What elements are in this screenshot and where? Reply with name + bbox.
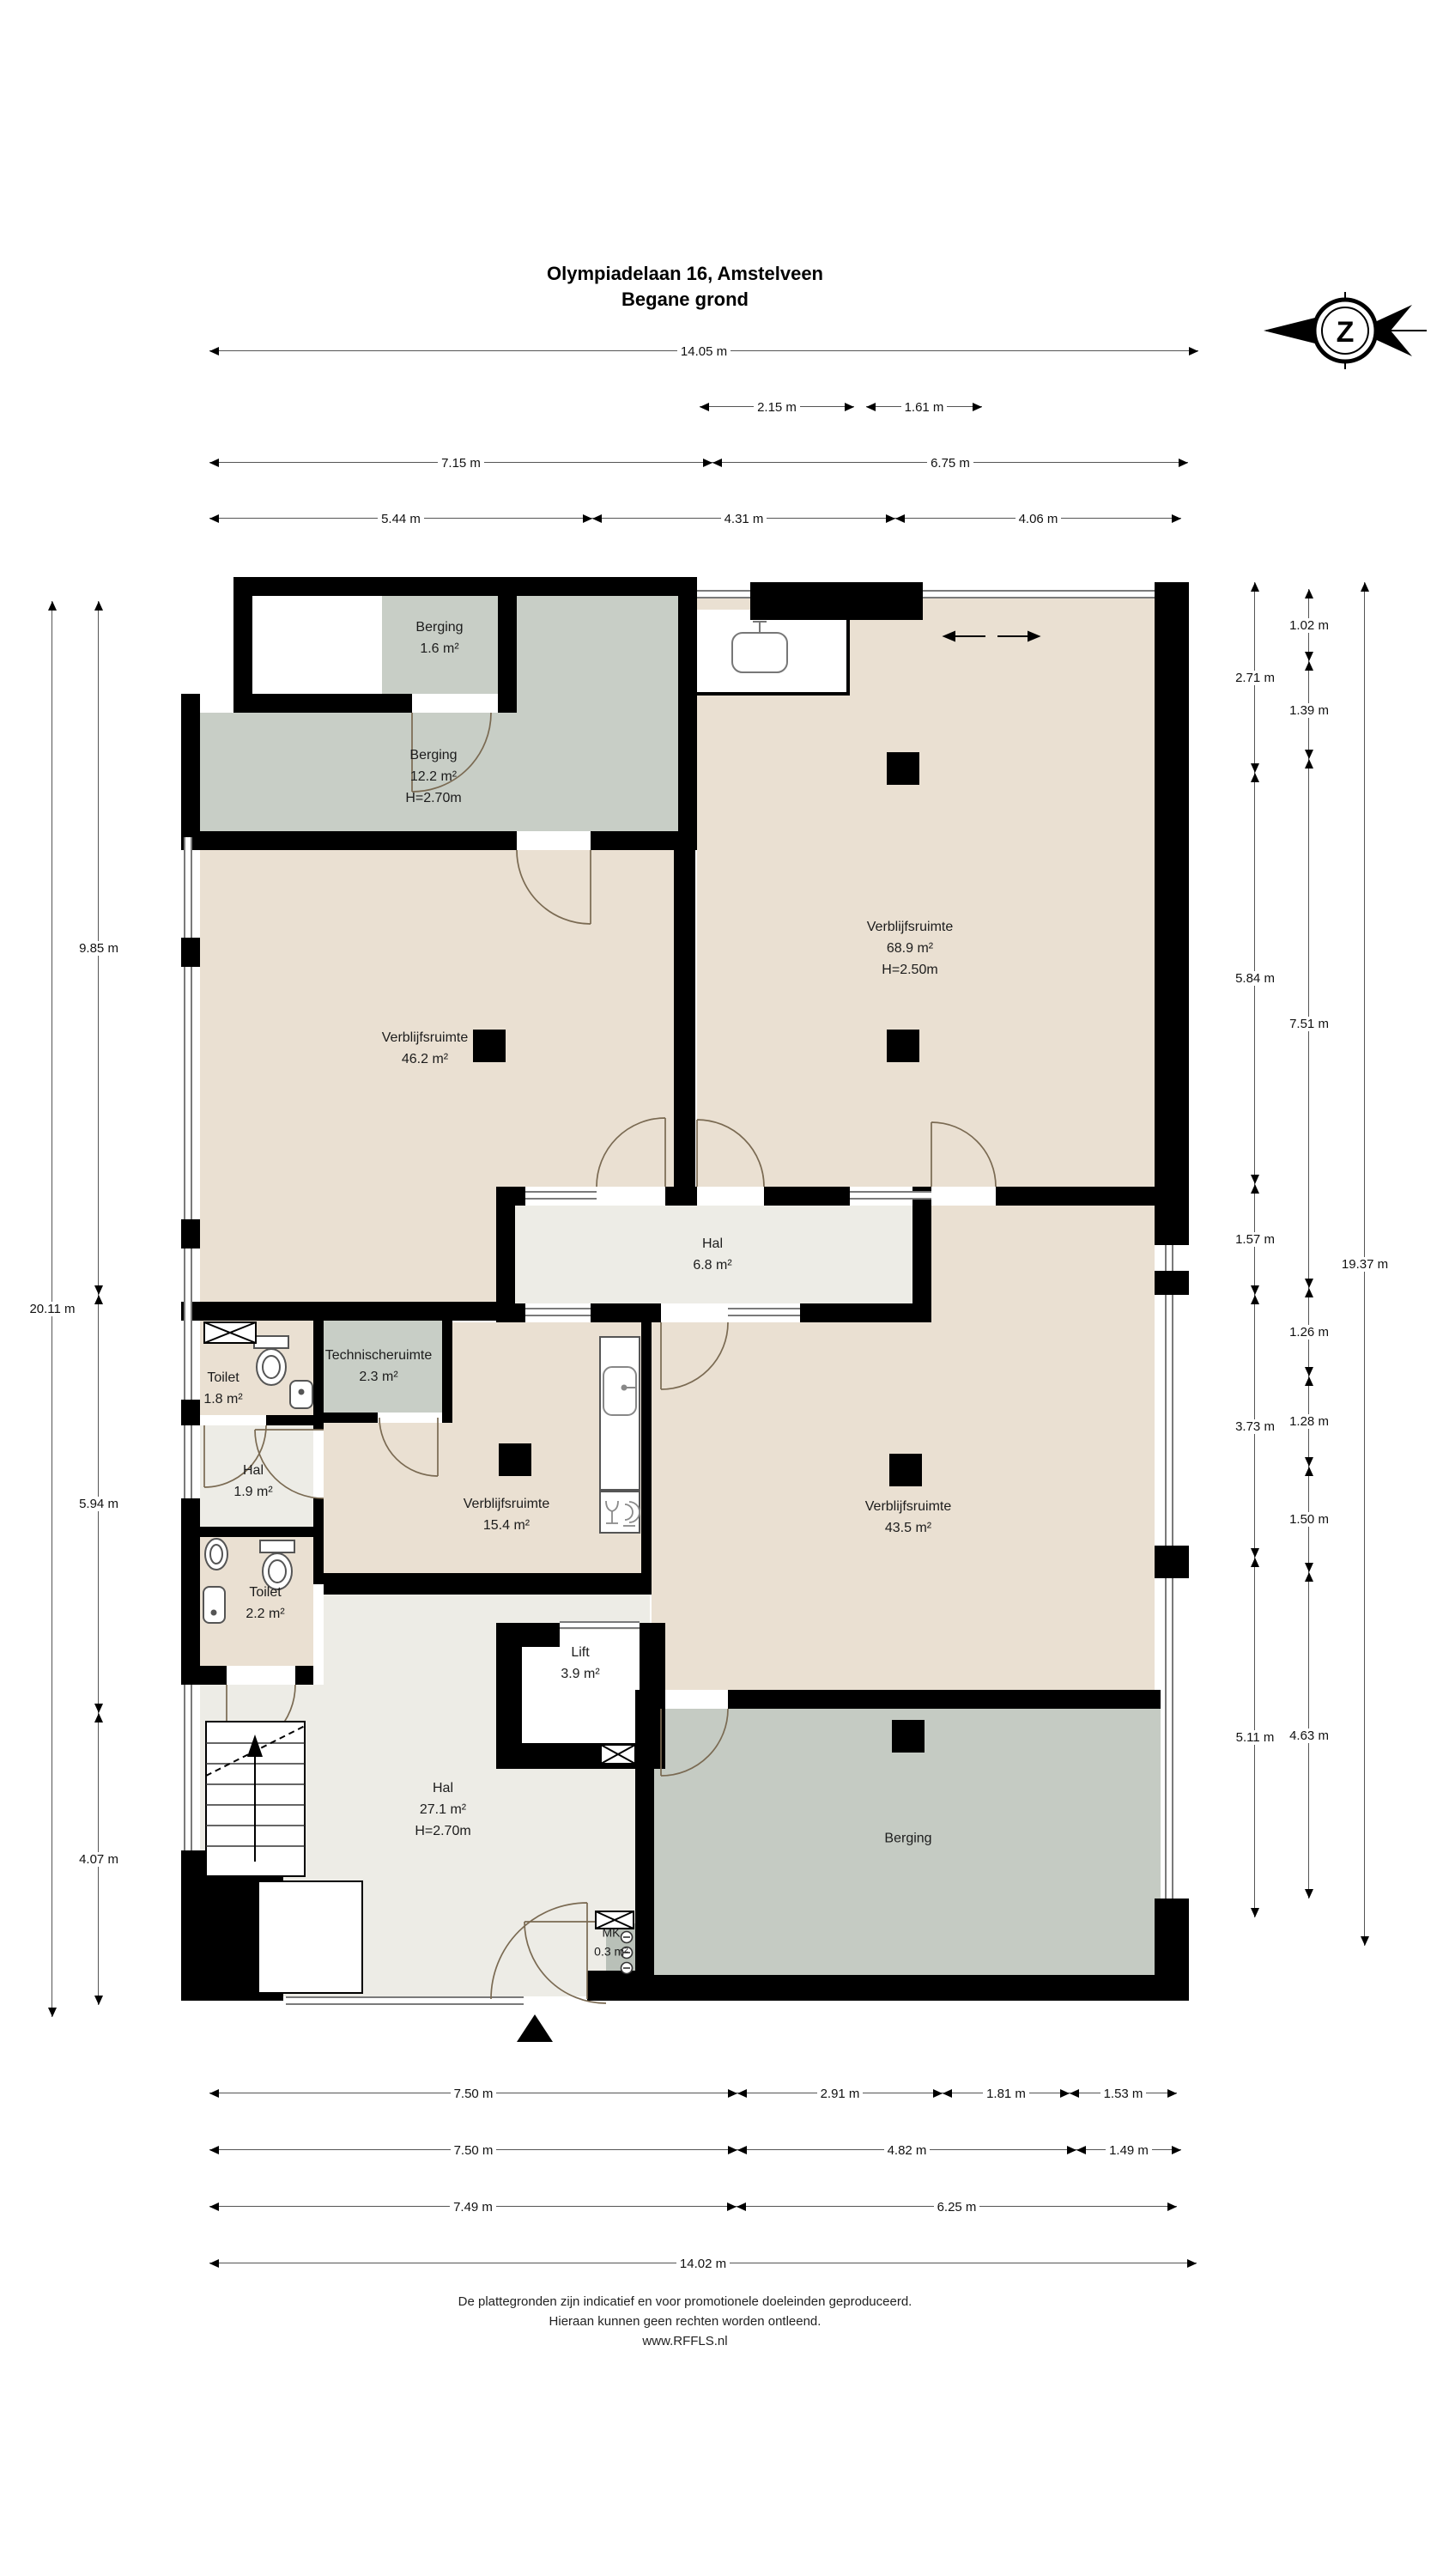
wall: [181, 1498, 200, 1685]
window: [184, 1685, 192, 1850]
wall-corner: [1155, 1899, 1189, 2001]
window: [184, 1425, 192, 1498]
disclaimer-line2: Hieraan kunnen geen rechten worden ontle…: [0, 2314, 1370, 2329]
dim-right: 1.02 m: [1301, 589, 1317, 661]
dim-right: 5.84 m: [1247, 773, 1263, 1184]
wall: [764, 1187, 850, 1206]
disclaimer-line1: De plattegronden zijn indicatief en voor…: [0, 2294, 1370, 2309]
room-area: 1.9 m²: [233, 1482, 272, 1504]
room-area: 46.2 m²: [382, 1049, 468, 1071]
room-label-berging-12-2: Berging 12.2 m² H=2.70m: [405, 745, 461, 809]
wall-top-bar: [750, 582, 923, 620]
title-floor: Begane grond: [0, 287, 1370, 313]
wall-divider-15-43: [641, 1322, 652, 1595]
pillar: [473, 1030, 506, 1062]
wall-pillar: [181, 938, 200, 967]
dim-top-total: 14.05 m: [209, 343, 1198, 359]
dim-bottom: 1.49 m: [1076, 2142, 1181, 2158]
kitchen-counter: [599, 1336, 640, 1491]
wall: [233, 577, 252, 713]
room-name: Hal: [693, 1234, 731, 1255]
dim-top: 4.06 m: [895, 511, 1181, 526]
wall-left-main: [181, 694, 200, 837]
room-area: 0.3 m²: [594, 1942, 628, 1961]
wall-lift: [496, 1623, 560, 1647]
dim-top: 5.44 m: [209, 511, 592, 526]
room-area: 2.2 m²: [246, 1604, 284, 1625]
room-label-berging-groot: Berging: [884, 1829, 931, 1850]
room-area: 6.8 m²: [693, 1255, 731, 1277]
room-height: H=2.70m: [415, 1820, 470, 1842]
dim-top: 2.15 m: [700, 399, 854, 415]
wall: [800, 1303, 931, 1322]
room-label-toilet-2-2: Toilet 2.2 m²: [246, 1583, 284, 1625]
wall: [498, 577, 517, 713]
page-title: Olympiadelaan 16, Amstelveen Begane gron…: [0, 261, 1370, 312]
room-area: 3.9 m²: [561, 1664, 599, 1686]
wall: [728, 1690, 1161, 1709]
window: [850, 1191, 931, 1200]
room-berging-1-6-niche: [252, 596, 382, 694]
room-name: Lift: [561, 1643, 599, 1664]
pillar: [892, 1720, 925, 1753]
dim-bottom: 6.25 m: [737, 2199, 1177, 2215]
room-label-hal-1-9: Hal 1.9 m²: [233, 1461, 272, 1504]
dishwasher-box: [599, 1491, 640, 1534]
window-front: [286, 1996, 524, 2005]
wall: [313, 1498, 324, 1584]
room-label-hal-6-8: Hal 6.8 m²: [693, 1234, 731, 1277]
room-area: 1.6 m²: [415, 639, 463, 660]
room-name: MK: [594, 1923, 628, 1942]
dim-bottom: 1.81 m: [943, 2086, 1070, 2101]
room-label-technische-ruimte: Technischeruimte 2.3 m²: [325, 1346, 433, 1388]
room-area: 27.1 m²: [415, 1800, 470, 1821]
compass-letter: Z: [1337, 316, 1355, 349]
wall: [912, 1187, 931, 1322]
room-verblijfsruimte-43-5-upper: [931, 1187, 1155, 1322]
pillar: [887, 1030, 919, 1062]
dim-right: 5.11 m: [1247, 1558, 1263, 1917]
floorplan-page: Olympiadelaan 16, Amstelveen Begane gron…: [0, 0, 1449, 2576]
window: [697, 590, 750, 598]
window: [184, 967, 192, 1219]
dim-left: 9.85 m: [91, 601, 106, 1295]
room-area: 2.3 m²: [325, 1367, 433, 1388]
room-name: Verblijfsruimte: [464, 1494, 549, 1516]
wall-pillar: [181, 1219, 200, 1249]
window: [525, 1191, 597, 1200]
door-opening: [597, 1187, 665, 1206]
pillar: [887, 752, 919, 785]
room-label-verblijfsruimte-68-9: Verblijfsruimte 68.9 m² H=2.50m: [867, 917, 953, 981]
door-opening: [661, 1690, 728, 1709]
window: [525, 1308, 591, 1316]
wall: [181, 831, 517, 850]
door-opening: [517, 831, 591, 850]
door-opening: [412, 694, 491, 713]
room-name: Verblijfsruimte: [867, 917, 953, 939]
entrance-arrow-icon: [517, 2014, 553, 2042]
wall: [200, 1527, 313, 1537]
dim-right: 3.73 m: [1247, 1295, 1263, 1558]
dim-bottom: 7.50 m: [209, 2142, 737, 2158]
pillar: [499, 1443, 531, 1476]
room-height: H=2.70m: [405, 787, 461, 809]
room-area: 1.8 m²: [203, 1389, 242, 1411]
wall: [181, 1302, 496, 1321]
door-opening: [697, 1187, 764, 1206]
room-area: 43.5 m²: [865, 1518, 951, 1540]
dim-left-total: 20.11 m: [45, 601, 60, 2017]
room-area: 68.9 m²: [867, 939, 953, 960]
dim-top: 7.15 m: [209, 455, 712, 471]
room-name: Verblijfsruimte: [865, 1497, 951, 1518]
dim-bottom: 4.82 m: [737, 2142, 1076, 2158]
dim-top: 1.61 m: [866, 399, 982, 415]
room-label-verblijfsruimte-15-4: Verblijfsruimte 15.4 m²: [464, 1494, 549, 1537]
wall: [233, 577, 697, 596]
stair-void: [258, 1880, 363, 1994]
room-name: Toilet: [203, 1368, 242, 1389]
dim-bottom: 7.49 m: [209, 2199, 737, 2215]
window: [184, 1249, 192, 1400]
dim-right: 1.50 m: [1301, 1467, 1317, 1572]
room-name: Hal: [233, 1461, 272, 1482]
dim-bottom: 1.53 m: [1070, 2086, 1177, 2101]
room-name: Hal: [415, 1778, 470, 1800]
pillar: [889, 1454, 922, 1486]
dim-right: 4.63 m: [1301, 1572, 1317, 1899]
dim-top: 4.31 m: [592, 511, 895, 526]
dim-bottom: 2.91 m: [737, 2086, 943, 2101]
room-label-lift: Lift 3.9 m²: [561, 1643, 599, 1686]
dim-left: 5.94 m: [91, 1295, 106, 1713]
wall-right-main: [1155, 582, 1189, 1245]
room-label-toilet-1-8: Toilet 1.8 m²: [203, 1368, 242, 1411]
wall: [665, 1187, 697, 1206]
room-verblijfsruimte-15-4-arm: [324, 1423, 452, 1573]
door-opening: [661, 1303, 728, 1322]
lift-door: [560, 1621, 640, 1629]
room-name: Toilet: [246, 1583, 284, 1604]
dim-right: 1.28 m: [1301, 1376, 1317, 1467]
wall: [496, 1187, 515, 1322]
room-verblijfsruimte-46-2-lower: [200, 1187, 496, 1302]
wall: [587, 1971, 635, 2001]
wall-pillar: [1155, 1546, 1189, 1578]
room-label-berging-1-6: Berging 1.6 m²: [415, 617, 463, 660]
door-opening: [931, 1187, 996, 1206]
title-address: Olympiadelaan 16, Amstelveen: [0, 261, 1370, 287]
wall: [266, 1415, 313, 1425]
wall-lift: [496, 1743, 665, 1769]
room-name: Technischeruimte: [325, 1346, 433, 1367]
room-area: 15.4 m²: [464, 1516, 549, 1537]
room-name: Verblijfsruimte: [382, 1028, 468, 1049]
room-area: 12.2 m²: [405, 767, 461, 788]
wall: [315, 1413, 378, 1423]
dim-right: 1.39 m: [1301, 661, 1317, 759]
room-name: Berging: [405, 745, 461, 767]
dim-right: 1.57 m: [1247, 1184, 1263, 1295]
wall: [295, 1666, 313, 1685]
window: [184, 837, 192, 938]
wall: [313, 1321, 324, 1430]
room-verblijfsruimte-46-2: [200, 850, 678, 1187]
wall: [181, 1400, 200, 1425]
room-height: H=2.50m: [867, 959, 953, 981]
wall-divider-46-68: [674, 850, 695, 1187]
room-label-mk: MK 0.3 m²: [594, 1923, 628, 1960]
dim-bottom: 7.50 m: [209, 2086, 737, 2101]
wall: [252, 694, 412, 713]
wall: [324, 1573, 652, 1595]
room-label-verblijfsruimte-43-5: Verblijfsruimte 43.5 m²: [865, 1497, 951, 1540]
room-label-hal-27-1: Hal 27.1 m² H=2.70m: [415, 1778, 470, 1842]
dim-right-total: 19.37 m: [1357, 582, 1373, 1946]
room-name: Berging: [415, 617, 463, 639]
wall-bottom: [635, 1975, 1189, 2001]
dim-left: 4.07 m: [91, 1713, 106, 2005]
wall: [678, 577, 697, 850]
dim-top: 6.75 m: [712, 455, 1188, 471]
wall: [442, 1321, 452, 1423]
wall: [591, 1303, 661, 1322]
wall: [496, 1303, 525, 1322]
wall-pillar: [1155, 1271, 1189, 1295]
dim-right: 2.71 m: [1247, 582, 1263, 773]
wall: [996, 1187, 1155, 1206]
dim-right: 7.51 m: [1301, 759, 1317, 1288]
kitchen-niche: [697, 610, 850, 696]
room-label-verblijfsruimte-46-2: Verblijfsruimte 46.2 m²: [382, 1028, 468, 1071]
dim-bottom-total: 14.02 m: [209, 2256, 1197, 2271]
wall: [200, 1666, 227, 1685]
website-url: www.RFFLS.nl: [0, 2334, 1370, 2348]
dim-right: 1.26 m: [1301, 1288, 1317, 1376]
window: [728, 1308, 800, 1316]
window: [923, 590, 1155, 598]
room-name: Berging: [884, 1829, 931, 1850]
